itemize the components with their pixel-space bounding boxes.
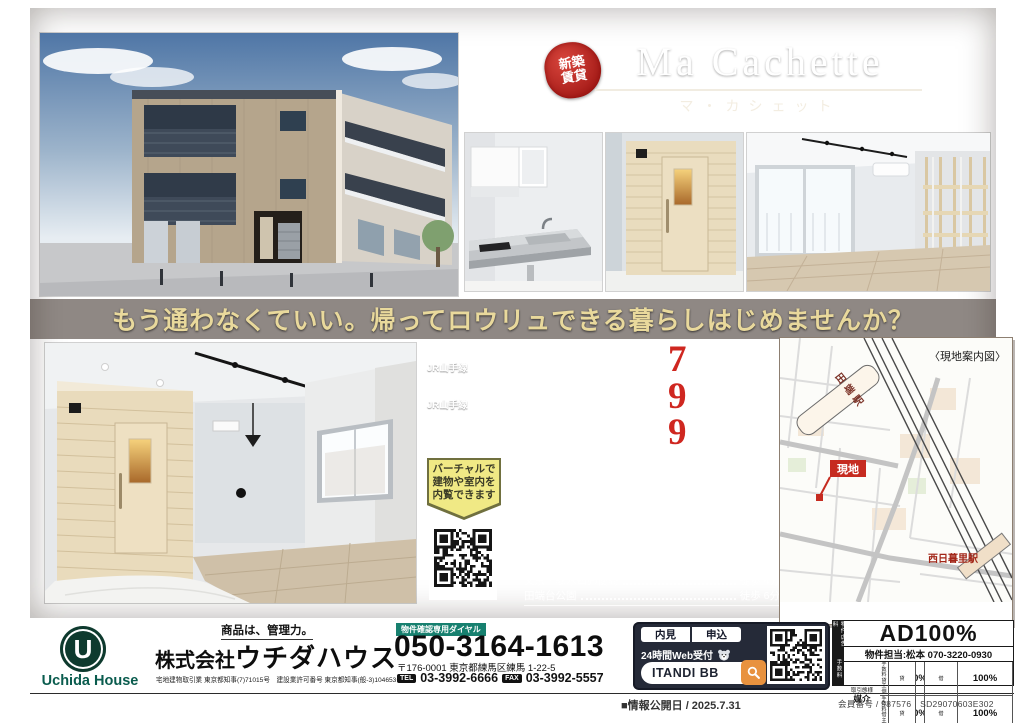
company-main: ウチダハウス xyxy=(235,643,397,673)
fee-key: 貸 xyxy=(889,662,916,696)
building-exterior-photo xyxy=(40,33,458,296)
rail-line-label: JR山手線 xyxy=(427,397,481,411)
itandi-bb-pill: ITANDI BB xyxy=(641,662,763,684)
dot-leader xyxy=(593,490,735,492)
facility-walk: 徒歩 4分 xyxy=(740,496,780,511)
station-name: 「西日暮里」 xyxy=(481,381,619,415)
strip-label-bottom: 手数料 xyxy=(833,653,844,685)
facility-name: ファミリーマート 田端一丁目店 xyxy=(524,527,674,542)
facility-walk: 徒歩 3分 xyxy=(740,542,780,557)
facility-walk: 徒歩 6分 xyxy=(740,588,780,603)
lifeinfo-item: コープ 田端店徒歩 3分 xyxy=(524,480,780,495)
naiken-cell: 内見 xyxy=(641,627,690,642)
company-prefix: 株式会社 xyxy=(155,650,235,672)
bear-icon xyxy=(717,648,731,662)
virtual-badge-line2: 建物や室内を xyxy=(433,476,496,489)
apply-cell: 申込 xyxy=(692,627,741,642)
minutes-unit: 分 xyxy=(688,425,704,449)
access-row-nishinippori-metro: 東京メトロ 千代田線 「西日暮里」 駅徒歩 9 分 (700m) xyxy=(427,417,783,455)
fax-icon: FAX xyxy=(502,674,522,683)
living-room-photo xyxy=(747,133,990,291)
uchida-house-logo: U xyxy=(60,626,106,672)
walk-label: 駅徒歩 xyxy=(619,389,667,413)
facility-walk: 徒歩10分 xyxy=(737,557,780,572)
walk-minutes: 9 xyxy=(668,418,687,448)
license-numbers: 宅地建物取引業 東京都知事(7)71015号 建設業許可番号 東京都知事(般-3… xyxy=(156,674,403,684)
distance: (700m) xyxy=(705,433,743,447)
virtual-tour-qr-code xyxy=(429,524,497,600)
dot-leader xyxy=(667,521,736,523)
catch-copy-text: もう通わなくていい。帰ってロウリュできる暮らしはじめませんか？ xyxy=(112,301,914,337)
facility-name: まいばすけっと 田端動坂店 xyxy=(524,496,653,511)
search-icon xyxy=(741,660,766,685)
property-check-phone-number: 050-3164-1613 xyxy=(394,632,604,662)
lifeinfo-item: ユニバーサルドラッグ 動坂店徒歩 5分 xyxy=(524,511,780,526)
minutes-unit: 分 xyxy=(688,389,704,413)
dot-leader xyxy=(678,537,736,539)
lifeinfo-item: 田端台公園徒歩 6分 xyxy=(524,588,780,603)
location-map: 田端駅 西日暮里駅 現地 〈現地案内図〉 xyxy=(779,337,1013,625)
sauna-door-photo xyxy=(606,133,743,291)
ad-headline: AD100% xyxy=(844,621,1013,647)
ad-contact: 物件担当:松本 070-3220-0930 xyxy=(844,647,1013,662)
facility-name: コープ 田端店 xyxy=(524,480,589,495)
ad-vertical-strip: 物件広告料 手数料 xyxy=(833,621,844,685)
qr-pattern xyxy=(434,529,492,587)
station-name: 「田 端」 xyxy=(481,344,619,378)
virtual-badge-line3: 内覧できます xyxy=(433,489,496,502)
distance: (500m) xyxy=(705,360,743,374)
facility-walk: 徒歩 4分 xyxy=(740,573,780,588)
itandi-qr-code xyxy=(767,626,825,684)
kitchen-photo xyxy=(465,133,602,291)
itandi-bb-panel: 内見 申込 24時間Web受付 ITANDI BB xyxy=(633,622,830,690)
lifeinfo-item: 文京千駄木四郵便局徒歩 4分 xyxy=(524,572,780,587)
rail-line-2: 千代田線 xyxy=(427,446,463,456)
virtual-badge-line1: バーチャルで xyxy=(433,463,496,476)
logo-letter: U xyxy=(74,634,93,665)
web-reception-text: 24時間Web受付 xyxy=(641,647,713,662)
property-title: Ma Cachette xyxy=(590,38,930,85)
qr-pattern xyxy=(770,629,822,681)
map-art: 田端駅 西日暮里駅 現地 〈現地案内図〉 xyxy=(780,338,1012,602)
walk-label: 駅徒歩 xyxy=(619,352,667,376)
walk-minutes: 7 xyxy=(668,345,687,375)
deal-type-cell: 取引態様 媒介 xyxy=(844,662,880,723)
rail-line-label: 東京メトロ 千代田線 xyxy=(427,437,481,457)
rail-line-label: JR山手線 xyxy=(427,360,481,374)
catch-copy-band: もう通わなくていい。帰ってロウリュできる暮らしはじめませんか？ xyxy=(30,299,996,339)
flyer-page: 新築 賃貸 Ma Cachette マ・カシェット xyxy=(0,0,1024,723)
title-underline xyxy=(595,89,922,91)
facility-walk: 徒歩 3分 xyxy=(740,527,780,542)
itandi-bb-brand: ITANDI BB xyxy=(641,666,719,680)
lifeinfo-item: ファミリーマート 田端一丁目店徒歩 3分 xyxy=(524,526,780,541)
dot-leader xyxy=(657,567,733,569)
fee-row-label: 手数料 貸主側 xyxy=(880,662,889,696)
lifeinfo-bottom-rule xyxy=(524,605,780,606)
fee-table: 手数料 貸主側 貸 0% 借 100% 取引態様 媒介 手数料 借主側 貸 0%… xyxy=(844,662,1013,723)
site-marker-label: 現地 xyxy=(837,462,859,476)
rail-line-1: 東京メトロ xyxy=(427,436,472,446)
strip-label-top: 物件広告料 xyxy=(833,621,844,653)
tel-number: 03-3992-6666 xyxy=(420,671,498,685)
dot-leader xyxy=(657,506,736,508)
nishinippori-station-label: 西日暮里駅 xyxy=(928,552,979,565)
minutes-unit: 分 xyxy=(688,352,704,376)
lifeinfo-title: Lifeinformation xyxy=(525,457,674,482)
fee-value: 100% xyxy=(958,662,1013,696)
facility-name: ユニバーサルドラッグ 動坂店 xyxy=(524,511,663,526)
facility-walk: 徒歩 5分 xyxy=(740,511,780,526)
dot-leader xyxy=(646,552,735,554)
lifeinfo-item: ローソン 田端与楽寺前店徒歩 3分 xyxy=(524,542,780,557)
dot-leader xyxy=(623,583,736,585)
fee-value: 0% xyxy=(916,662,925,696)
walk-minutes: 9 xyxy=(668,382,687,412)
ad-main: AD100% 物件担当:松本 070-3220-0930 手数料 貸主側 貸 0… xyxy=(844,621,1013,685)
itandi-tabs: 内見 申込 xyxy=(641,627,741,642)
fee-key: 借 xyxy=(925,662,958,696)
deal-type-label: 取引態様 xyxy=(851,688,873,695)
facility-walk: 徒歩 3分 xyxy=(740,480,780,495)
company-name: 株式会社ウチダハウス xyxy=(155,638,397,675)
lifeinfo-list: コープ 田端店徒歩 3分 まいばすけっと 田端動坂店徒歩 4分 ユニバーサルドラ… xyxy=(524,480,780,603)
station-name: 「西日暮里」 xyxy=(481,417,619,451)
tel-icon: TEL xyxy=(397,674,416,683)
building-render-art xyxy=(40,33,458,296)
walk-label: 駅徒歩 xyxy=(619,425,667,449)
lifeinfo-subtitle: 周辺施設 xyxy=(668,465,712,478)
access-row-nishinippori-jr: JR山手線 「西日暮里」 駅徒歩 9 分 (700m) xyxy=(427,381,783,419)
access-row-tabata: JR山手線 「田 端」 駅徒歩 7 分 (500m) xyxy=(427,344,783,382)
ad-fee-box: 物件広告料 手数料 AD100% 物件担当:松本 070-3220-0930 手… xyxy=(832,620,1014,686)
facility-name: キャンドゥ 西日暮里駅前店 xyxy=(524,557,653,572)
fax-number: 03-3992-5557 xyxy=(526,671,604,685)
member-number: 会員番号 / 987576 SD29070603E302 xyxy=(838,698,994,710)
interior-sauna-photo xyxy=(45,343,416,603)
dot-leader xyxy=(581,598,736,600)
facility-name: 田端台公園 xyxy=(524,588,577,603)
publish-date: ■情報公開日 / 2025.7.31 xyxy=(621,697,741,713)
web-reception-label: 24時間Web受付 xyxy=(641,647,731,662)
seal-text-bottom: 賃貸 xyxy=(560,68,588,86)
logo-wordmark: Uchida House xyxy=(34,673,146,689)
distance: (700m) xyxy=(705,397,743,411)
facility-name: ローソン 田端与楽寺前店 xyxy=(524,542,642,557)
tel-fax-row: TEL 03-3992-6666 FAX 03-3992-5557 xyxy=(397,671,604,685)
lifeinfo-item: まいばすけっと 田端動坂店徒歩 4分 xyxy=(524,495,780,510)
property-title-kana: マ・カシェット xyxy=(590,96,930,116)
lifeinfo-item: キャンドゥ 西日暮里駅前店徒歩10分 xyxy=(524,557,780,572)
map-caption: 〈現地案内図〉 xyxy=(929,349,1006,363)
facility-name: 文京千駄木四郵便局 xyxy=(524,573,619,588)
